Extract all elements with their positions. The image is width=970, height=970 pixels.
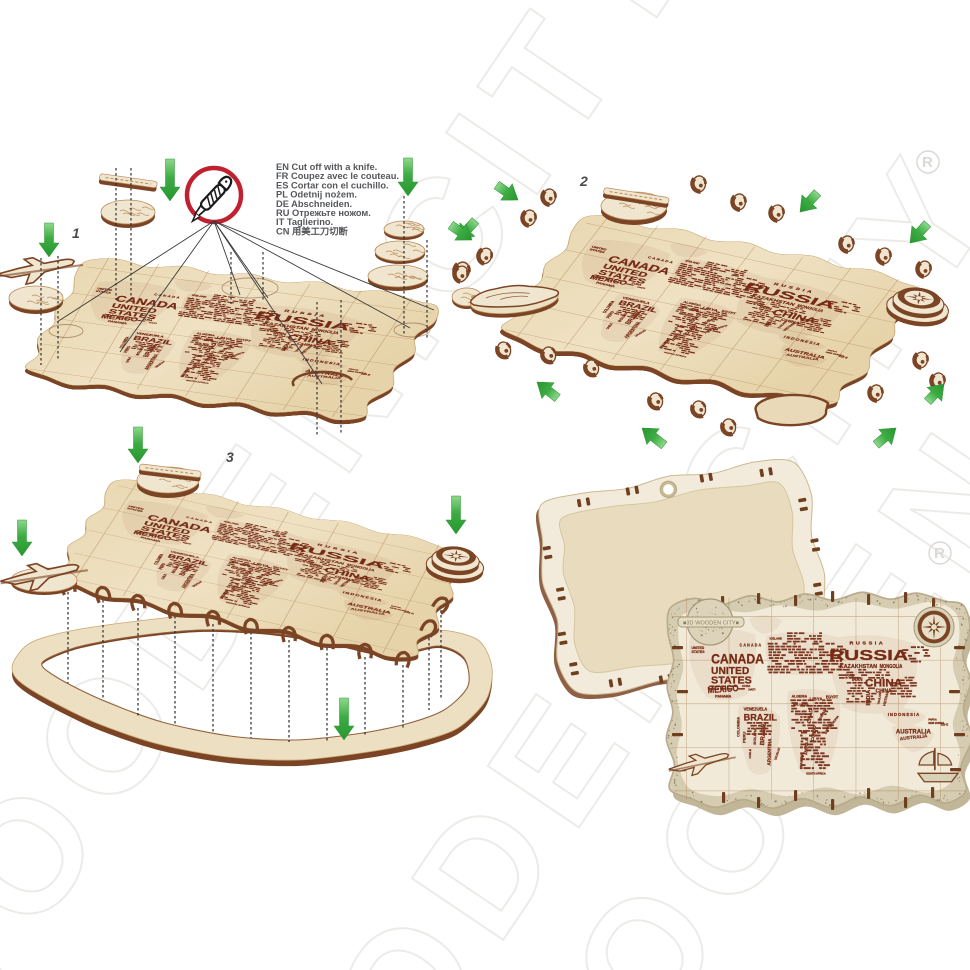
svg-text:RUSSIA: RUSSIA <box>849 640 885 645</box>
svg-text:INDONESIA: INDONESIA <box>888 712 921 717</box>
svg-text:CANADA: CANADA <box>740 642 763 647</box>
svg-text:ARGENTINA: ARGENTINA <box>767 738 774 766</box>
svg-text:1: 1 <box>72 225 80 241</box>
svg-text:CN 用美工刀切断: CN 用美工刀切断 <box>276 225 348 236</box>
svg-text:2: 2 <box>579 173 588 189</box>
svg-text:PANAMA: PANAMA <box>715 695 732 699</box>
svg-text:VENEZUELA: VENEZUELA <box>744 707 768 712</box>
svg-text:RUSSIA: RUSSIA <box>829 648 908 665</box>
svg-text:PERU: PERU <box>741 732 746 743</box>
svg-text:CANADA: CANADA <box>711 651 764 666</box>
svg-text:SOUTH AFRICA: SOUTH AFRICA <box>806 771 826 775</box>
svg-text:3: 3 <box>226 449 234 465</box>
svg-text:■3D WOODEN CITY■: ■3D WOODEN CITY■ <box>683 621 739 627</box>
svg-text:INDIA: INDIA <box>866 690 872 706</box>
svg-text:ICELAND: ICELAND <box>770 636 782 640</box>
svg-text:CUBA: CUBA <box>742 684 751 688</box>
svg-text:BOLIVIA: BOLIVIA <box>753 728 757 745</box>
svg-text:STATES: STATES <box>692 650 706 654</box>
svg-text:HAITI: HAITI <box>749 688 756 692</box>
svg-text:MONGOLIA: MONGOLIA <box>880 664 903 670</box>
svg-text:BRAZIL: BRAZIL <box>744 712 778 722</box>
svg-text:123 E: 123 E <box>941 722 949 726</box>
svg-text:CHILE: CHILE <box>748 749 752 759</box>
svg-text:ALGERIA: ALGERIA <box>792 695 808 699</box>
svg-text:EGYPT: EGYPT <box>826 694 839 699</box>
svg-text:COLOMBIA: COLOMBIA <box>736 717 741 737</box>
